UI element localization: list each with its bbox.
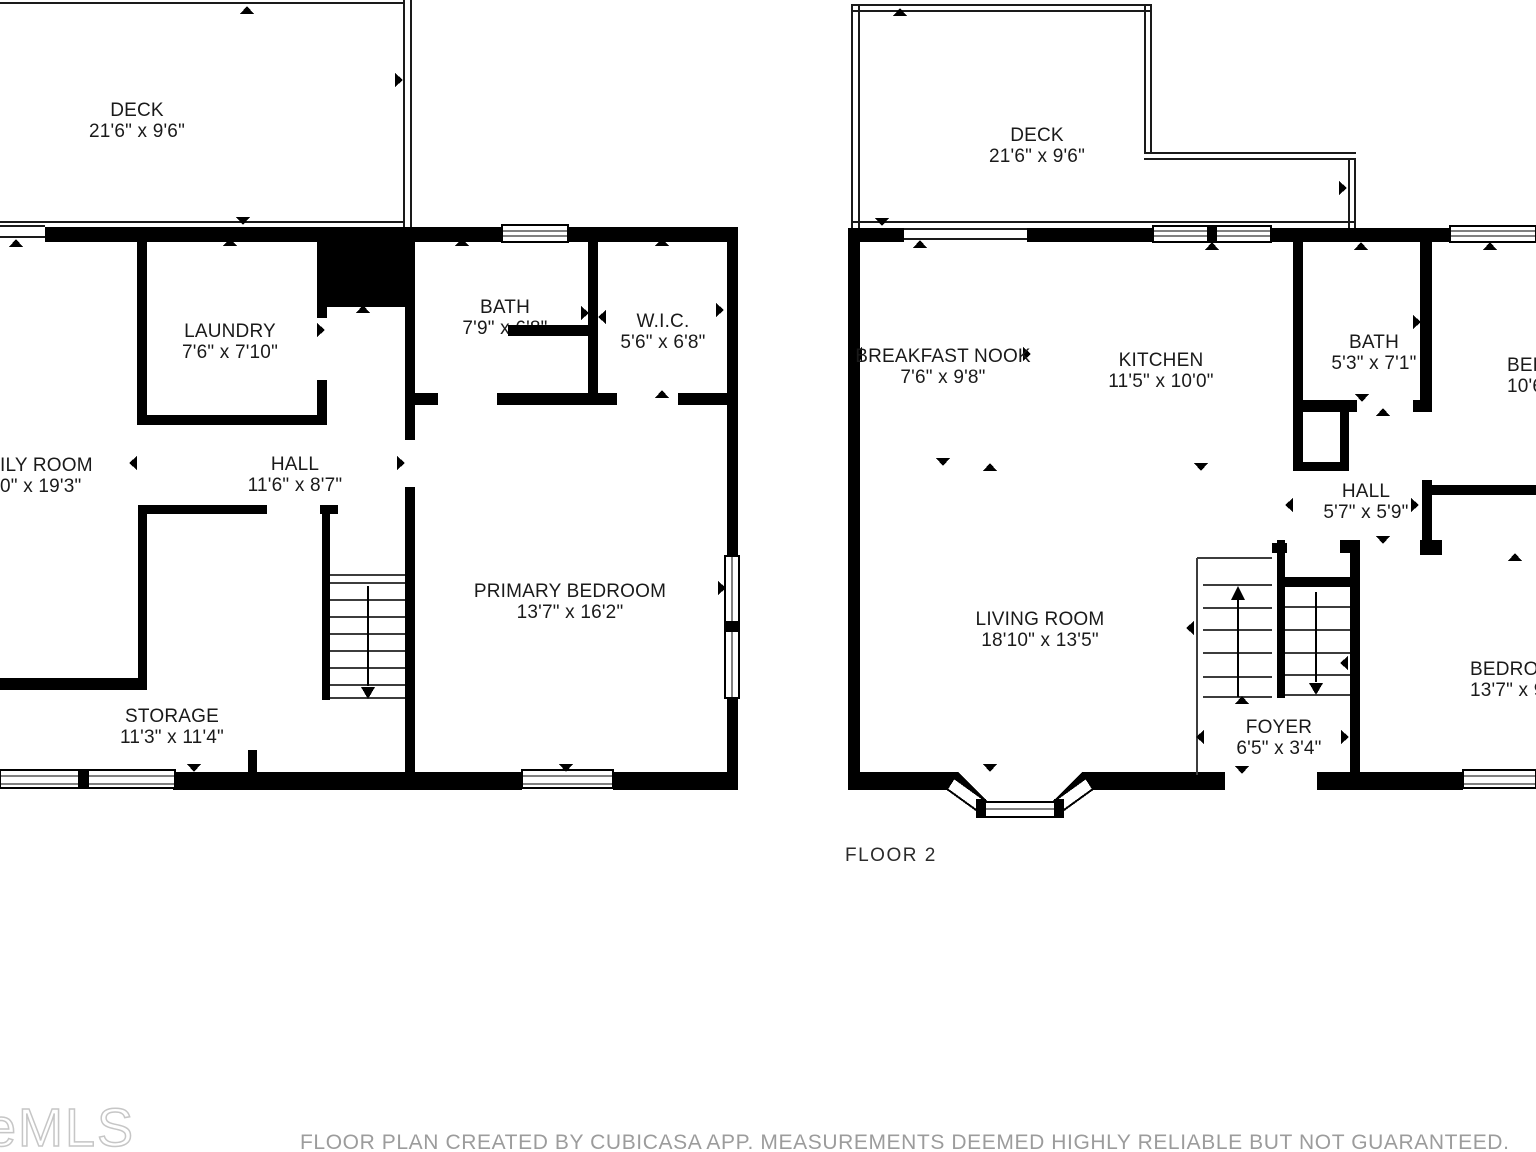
door-window-tick-icon — [187, 764, 201, 772]
room-label-hall-floor2: HALL5'7" x 5'9" — [1323, 481, 1408, 523]
room-name: PRIMARY BEDROOM — [474, 581, 666, 602]
door-window-tick-icon — [913, 240, 927, 248]
room-label-foyer: FOYER6'5" x 3'4" — [1236, 717, 1321, 759]
door-window-tick-icon — [716, 303, 724, 317]
door-window-tick-icon — [1194, 463, 1208, 471]
door-window-tick-icon — [9, 239, 23, 247]
door-window-tick-icon — [1411, 498, 1419, 512]
room-label-bedroom-lower-cut: BEDROO13'7" x 9 — [1470, 659, 1536, 701]
room-name: STORAGE — [120, 706, 224, 727]
room-label-living-room: LIVING ROOM18'10" x 13'5" — [976, 609, 1105, 651]
floor-2-caption: FLOOR 2 — [845, 845, 937, 867]
room-name: BATH — [462, 297, 547, 318]
room-dims: 7'6" x 7'10" — [182, 342, 278, 363]
door-window-tick-icon — [240, 6, 254, 14]
floorplan-drawing — [0, 0, 1536, 1152]
room-name: W.I.C. — [620, 311, 705, 332]
room-name: LIVING ROOM — [976, 609, 1105, 630]
door-window-tick-icon — [1205, 242, 1219, 250]
mls-watermark: eMLS — [0, 1097, 135, 1152]
room-dims: 5'3" x 7'1" — [1331, 353, 1416, 374]
room-dims: 0" x 19'3" — [0, 476, 93, 497]
door-window-tick-icon — [1355, 394, 1369, 402]
room-dims: 18'10" x 13'5" — [976, 630, 1105, 651]
door-window-tick-icon — [1285, 498, 1293, 512]
floor2-deck-outline — [851, 4, 1356, 240]
room-dims: 10'6 — [1507, 376, 1536, 397]
room-label-storage: STORAGE11'3" x 11'4" — [120, 706, 224, 748]
door-window-tick-icon — [1340, 656, 1348, 670]
room-label-breakfast-nook: BREAKFAST NOOK7'6" x 9'8" — [855, 346, 1031, 388]
room-name: BATH — [1331, 332, 1416, 353]
room-name: BED — [1507, 355, 1536, 376]
room-dims: 5'7" x 5'9" — [1323, 502, 1408, 523]
room-dims: 13'7" x 9 — [1470, 680, 1536, 701]
door-window-tick-icon — [1376, 536, 1390, 544]
stair-down-arrow-floor1 — [361, 586, 375, 699]
room-dims: 7'6" x 9'8" — [855, 367, 1031, 388]
room-name: LAUNDRY — [182, 321, 278, 342]
door-window-tick-icon — [1508, 553, 1522, 561]
floor2-walls — [848, 228, 1536, 813]
bath-interior-wall — [508, 325, 588, 336]
room-label-kitchen: KITCHEN11'5" x 10'0" — [1108, 350, 1213, 392]
room-label-family-room-cut: ILY ROOM0" x 19'3" — [0, 455, 93, 497]
room-dims: 11'6" x 8'7" — [248, 475, 343, 496]
door-window-tick-icon — [983, 764, 997, 772]
room-name: FOYER — [1236, 717, 1321, 738]
door-window-tick-icon — [1354, 242, 1368, 250]
room-name: BREAKFAST NOOK — [855, 346, 1031, 367]
room-name: KITCHEN — [1108, 350, 1213, 371]
room-name: BEDROO — [1470, 659, 1536, 680]
room-dims: 21'6" x 9'6" — [989, 146, 1085, 167]
door-window-tick-icon — [983, 463, 997, 471]
room-dims: 5'6" x 6'8" — [620, 332, 705, 353]
door-window-tick-icon — [581, 306, 589, 320]
room-name: DECK — [89, 100, 185, 121]
door-window-tick-icon — [1483, 242, 1497, 250]
door-window-tick-icon — [936, 458, 950, 466]
room-label-bed-upper-cut: BED10'6 — [1507, 355, 1536, 397]
door-window-tick-icon — [1341, 730, 1349, 744]
room-name: ILY ROOM — [0, 455, 93, 476]
room-label-primary-bedroom: PRIMARY BEDROOM13'7" x 16'2" — [474, 581, 666, 623]
room-dims: 11'5" x 10'0" — [1108, 371, 1213, 392]
door-window-tick-icon — [1339, 181, 1347, 195]
floor1-deck-outline — [0, 0, 412, 238]
door-window-tick-icon — [1235, 766, 1249, 774]
cubicasa-disclaimer: FLOOR PLAN CREATED BY CUBICASA APP. MEAS… — [300, 1131, 1510, 1152]
door-window-tick-icon — [1186, 621, 1194, 635]
room-dims: 6'5" x 3'4" — [1236, 738, 1321, 759]
stair-up-arrow-floor2 — [1231, 586, 1245, 697]
room-name: HALL — [248, 454, 343, 475]
room-label-deck-floor1: DECK21'6" x 9'6" — [89, 100, 185, 142]
room-label-deck-floor2: DECK21'6" x 9'6" — [989, 125, 1085, 167]
room-label-wic: W.I.C.5'6" x 6'8" — [620, 311, 705, 353]
room-dims: 11'3" x 11'4" — [120, 727, 224, 748]
door-window-tick-icon — [397, 456, 405, 470]
floorplan-canvas: DECK21'6" x 9'6" LAUNDRY7'6" x 7'10" BAT… — [0, 0, 1536, 1152]
floor1-windows — [0, 225, 739, 788]
door-window-tick-icon — [129, 456, 137, 470]
door-window-tick-icon — [395, 73, 403, 87]
room-label-laundry: LAUNDRY7'6" x 7'10" — [182, 321, 278, 363]
room-name: DECK — [989, 125, 1085, 146]
room-dims: 13'7" x 16'2" — [474, 602, 666, 623]
room-label-hall-floor1: HALL11'6" x 8'7" — [248, 454, 343, 496]
door-window-tick-icon — [598, 310, 606, 324]
door-window-tick-icon — [1413, 315, 1421, 329]
door-window-tick-icon — [317, 323, 325, 337]
room-name: HALL — [1323, 481, 1408, 502]
door-window-tick-icon — [655, 390, 669, 398]
door-window-tick-icon — [1376, 408, 1390, 416]
room-dims: 21'6" x 9'6" — [89, 121, 185, 142]
room-label-bath-floor2: BATH5'3" x 7'1" — [1331, 332, 1416, 374]
